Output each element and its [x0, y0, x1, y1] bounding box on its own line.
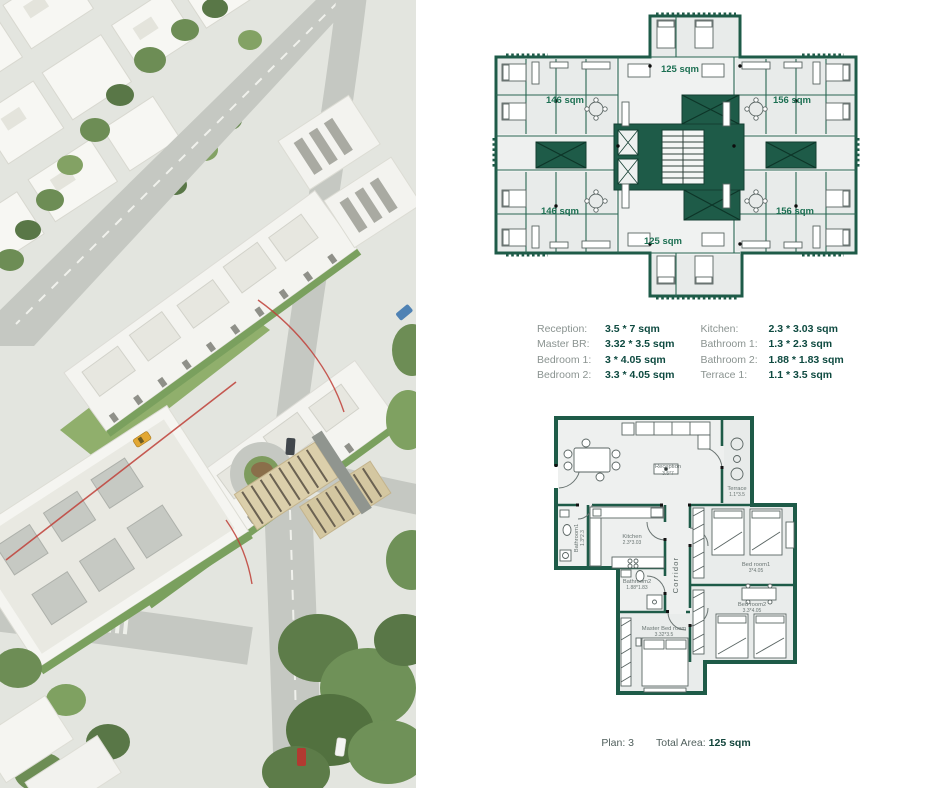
room-label-corridor: Corridor	[671, 557, 680, 594]
dim-value: 3.3 * 4.05 sqm	[605, 369, 674, 381]
unit-floor-plan: Reception 3.5*7 Terrace 1.1*3.5 Kitchen …	[552, 410, 800, 734]
room-dims-bathroom2: 1.88*1.83	[626, 585, 648, 591]
room-dims-terrace: 1.1*3.5	[729, 492, 745, 498]
unit-area-bottom-right: 156 sqm	[776, 206, 814, 217]
total-area-label: Total Area:	[656, 737, 706, 749]
dimensions-column-left: Reception: 3.5 * 7 sqm Master BR: 3.32 *…	[537, 323, 674, 381]
room-label-reception: Reception	[655, 464, 681, 470]
dim-value: 1.88 * 1.83 sqm	[768, 354, 843, 366]
room-dims-master-bedroom: 3.32*3.5	[655, 632, 674, 638]
plan-caption: Plan: 3 Total Area:125 sqm	[540, 737, 812, 749]
dim-value: 2.3 * 3.03 sqm	[768, 323, 843, 335]
entrance-opening	[554, 466, 558, 488]
dim-value: 3.32 * 3.5 sqm	[605, 338, 674, 350]
dim-value: 1.1 * 3.5 sqm	[768, 369, 843, 381]
dim-value: 1.3 * 2.3 sqm	[768, 338, 843, 350]
stairs	[662, 130, 704, 184]
room-dims-reception: 3.5*7	[662, 471, 674, 477]
unit-area-top-right: 156 sqm	[773, 95, 811, 106]
aerial-photo-illustration	[0, 0, 416, 788]
total-area: Total Area:125 sqm	[656, 737, 751, 749]
total-area-value: 125 sqm	[709, 737, 751, 749]
dim-value: 3.5 * 7 sqm	[605, 323, 674, 335]
dim-label: Bedroom 1:	[537, 354, 605, 366]
typical-floor-plan: 146 sqm 125 sqm 156 sqm 146 sqm 125 sqm …	[490, 6, 862, 300]
dim-value: 3 * 4.05 sqm	[605, 354, 674, 366]
unit-floor-plan-drawing: Reception 3.5*7 Terrace 1.1*3.5 Kitchen …	[552, 410, 800, 734]
dim-label: Bathroom 1:	[700, 338, 768, 350]
dim-label: Bedroom 2:	[537, 369, 605, 381]
room-dims-bathroom1: 1.3*2.3	[580, 530, 586, 546]
typical-floor-plan-drawing: 146 sqm 125 sqm 156 sqm 146 sqm 125 sqm …	[490, 6, 862, 300]
dimensions-table: Reception: 3.5 * 7 sqm Master BR: 3.32 *…	[537, 323, 844, 381]
room-dims-bedroom1: 3*4.05	[749, 568, 764, 574]
room-dims-bedroom2: 3.3*4.05	[743, 608, 762, 614]
unit-area-top-left: 146 sqm	[546, 95, 584, 106]
aerial-photo	[0, 0, 416, 788]
unit-area-top-center: 125 sqm	[661, 64, 699, 75]
dimensions-column-right: Kitchen: 2.3 * 3.03 sqm Bathroom 1: 1.3 …	[700, 323, 843, 381]
brochure-page: 146 sqm 125 sqm 156 sqm 146 sqm 125 sqm …	[0, 0, 940, 788]
unit-area-bottom-left: 146 sqm	[541, 206, 579, 217]
dim-label: Bathroom 2:	[700, 354, 768, 366]
dim-label: Terrace 1:	[700, 369, 768, 381]
room-dims-kitchen: 2.3*3.03	[623, 540, 642, 546]
dim-label: Master BR:	[537, 338, 605, 350]
plan-number: Plan: 3	[601, 737, 634, 749]
dim-label: Reception:	[537, 323, 605, 335]
unit-area-bottom-center: 125 sqm	[644, 236, 682, 247]
dim-label: Kitchen:	[700, 323, 768, 335]
